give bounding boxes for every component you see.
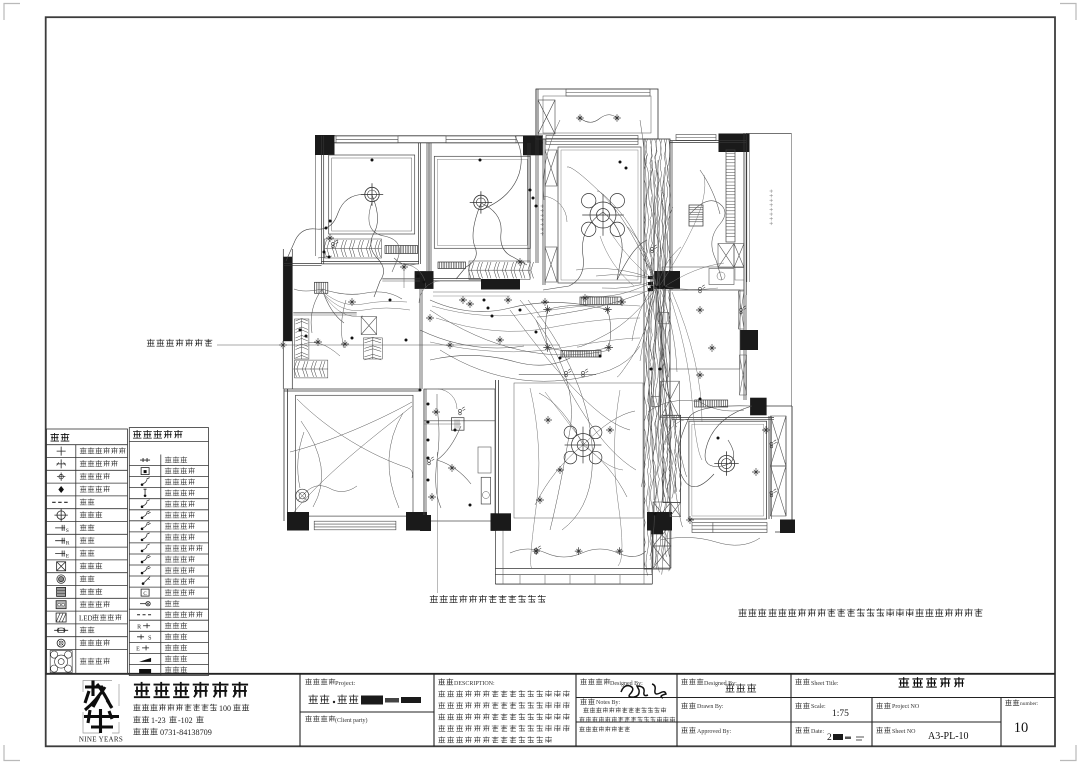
svg-text:Date:: Date: <box>811 729 824 735</box>
svg-text:10: 10 <box>1014 720 1029 736</box>
svg-text:A3-PL-10: A3-PL-10 <box>928 731 969 742</box>
svg-text:number:: number: <box>1020 701 1039 707</box>
svg-text:Approved By:: Approved By: <box>697 729 731 735</box>
svg-text:(Client party): (Client party) <box>335 717 368 724</box>
svg-text:R: R <box>137 624 141 630</box>
svg-text:1-23: 1-23 <box>151 716 166 725</box>
svg-text:S: S <box>66 528 69 534</box>
svg-text:Project NO: Project NO <box>892 704 920 710</box>
svg-text:Notes By:: Notes By: <box>596 700 621 706</box>
svg-text:Sheet Title:: Sheet Title: <box>811 681 839 687</box>
svg-text:100: 100 <box>219 704 231 713</box>
svg-text:1:75: 1:75 <box>832 709 849 719</box>
svg-text:Sheet NO: Sheet NO <box>892 729 916 735</box>
svg-text:S: S <box>148 635 151 641</box>
svg-text:NINE YEARS: NINE YEARS <box>79 736 123 744</box>
svg-text:LED: LED <box>79 614 93 622</box>
svg-text:E: E <box>136 646 140 652</box>
svg-text:Scale:: Scale: <box>811 704 826 710</box>
svg-text:Project:: Project: <box>335 680 355 687</box>
svg-text:2: 2 <box>827 733 832 743</box>
svg-text:R: R <box>66 541 70 547</box>
svg-text:Drawn By:: Drawn By: <box>697 704 724 710</box>
svg-text:-102: -102 <box>178 716 193 725</box>
svg-text:DESCRIPTION:: DESCRIPTION: <box>454 681 495 687</box>
svg-text:0731-84138709: 0731-84138709 <box>160 728 212 737</box>
